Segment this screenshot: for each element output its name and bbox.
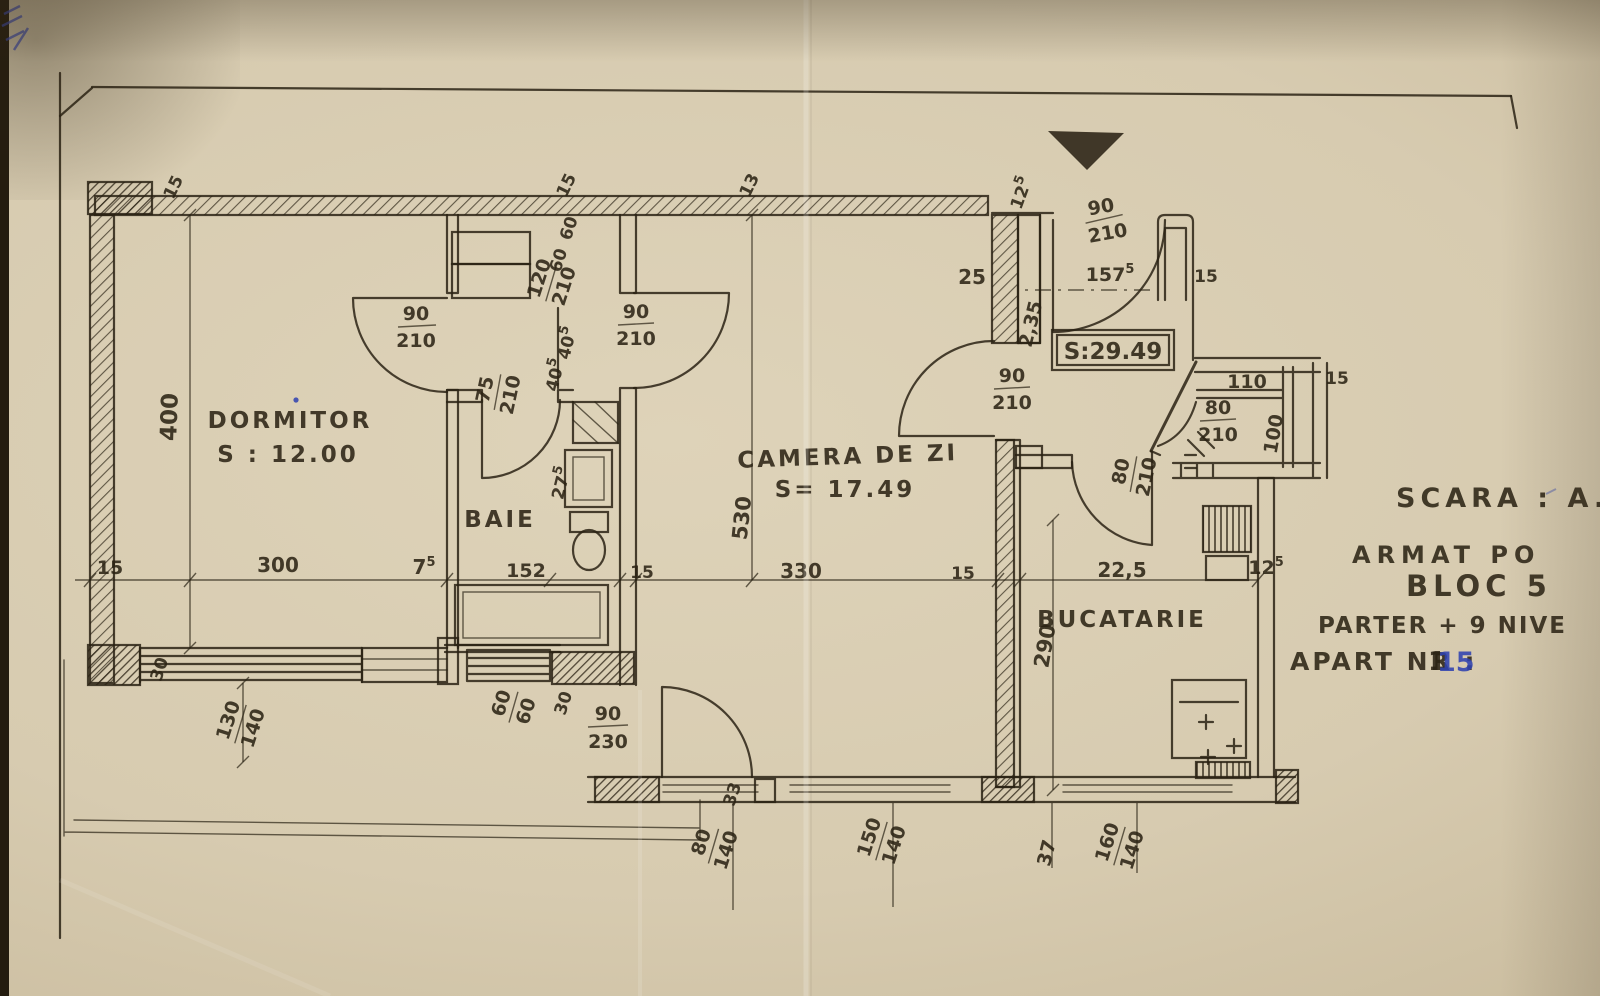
dim-400: 400 [156,393,184,442]
svg-text:80: 80 [1108,456,1135,486]
door-dim-vestibule: 90 210 [992,365,1032,414]
room-label-camera-de-zi: CAMERA DE ZI [737,440,959,474]
dim-15-left: 15 [97,557,123,579]
svg-text:6060: 6060 [546,214,583,275]
svg-text:210: 210 [616,328,656,350]
room-area-camera-de-zi: S= 17.49 [775,477,916,503]
svg-text:210: 210 [1198,424,1238,446]
svg-text:290: 290 [1029,622,1060,669]
window-dim-living: 150 140 [853,815,911,868]
svg-text:30: 30 [551,689,577,718]
door-dim-hall: 90 210 [616,301,656,350]
svg-text:210: 210 [992,392,1032,414]
room-labels: DORMITOR S : 12.00 BAIE CAMERA DE ZI S= … [208,408,1207,633]
window-dim-kitchen: 160 140 [1091,820,1149,873]
room-label-bucatarie: BUCATARIE [1037,607,1207,633]
closet-dim-6060: 6060 [546,214,583,275]
wall-dim-125: 125 [1003,173,1037,212]
dim-75: 75 [413,555,436,579]
dimension-ticks [84,209,1264,796]
svg-text:75: 75 [472,374,499,404]
dim-1575: 1575 [1086,262,1135,286]
kitchen-fixtures [1172,506,1251,778]
dim-225: 22,5 [1097,558,1146,582]
dim-30-right: 30 [551,689,577,718]
dim-125: 125 [1248,555,1284,579]
dim-37: 37 [1033,838,1061,869]
window-dim-small: 60 60 [486,685,542,730]
dim-530: 530 [728,495,756,541]
svg-text:405: 405 [550,324,581,362]
dim-33: 33 [720,780,746,809]
window-dim-hall: 80 140 [685,820,743,873]
svg-text:37: 37 [1033,838,1061,869]
svg-text:90: 90 [403,303,429,325]
door-dim-balcony: 80 210 [1198,397,1238,446]
apart-number-blue: 15 [1437,647,1475,678]
bath-dim-275: 275 [544,464,575,502]
room-area-dormitor: S : 12.00 [217,442,359,468]
svg-text:400: 400 [156,393,184,442]
svg-text:33: 33 [720,780,746,809]
svg-text:90: 90 [623,301,649,323]
dim-152: 152 [506,560,546,582]
niche-dim-405b: 405 [538,356,569,394]
dim-15-right: 15 [951,564,975,584]
svg-text:230: 230 [588,731,628,753]
svg-text:2,35: 2,35 [1015,299,1048,350]
dim-290: 290 [1029,622,1060,669]
dim-15-entry: 15 [1194,267,1218,287]
door-dim-bedroom: 90 210 [396,303,436,352]
door-dim-bath: 75 210 [470,368,525,417]
dim-15-balcony: 15 [1325,369,1349,389]
door-dim-stair: 90 210 [1081,193,1129,248]
window-dim-bedroom: 130 140 [212,698,270,751]
dim-15-mid: 15 [630,563,654,583]
svg-text:80: 80 [1205,397,1231,419]
svg-text:90: 90 [999,365,1025,387]
north-arrow-icon [1048,131,1124,170]
svg-text:275: 275 [544,464,575,502]
door-dim-entrance: 90 230 [588,703,628,753]
svg-text:90: 90 [595,703,621,725]
total-area-value: S:29.49 [1064,339,1163,365]
dimension-lines [75,209,1264,910]
room-label-dormitor: DORMITOR [208,408,373,434]
bath-fixtures [455,450,612,645]
room-label-baie: BAIE [464,507,536,533]
floor-plan-drawing: DORMITOR S : 12.00 BAIE CAMERA DE ZI S= … [0,0,1600,996]
svg-text:90: 90 [1086,194,1116,220]
svg-text:210: 210 [1086,219,1129,248]
svg-text:125: 125 [1003,173,1037,212]
dim-330: 330 [780,559,822,583]
balcony-window-dim: 110 [1227,371,1267,393]
svg-text:210: 210 [396,330,436,352]
dim-25: 25 [958,265,986,289]
dim-235: 2,35 [1015,299,1048,350]
niche-dim-405a: 405 [550,324,581,362]
svg-text:405: 405 [538,356,569,394]
dim-300: 300 [257,553,299,577]
door-dim-kitchen: 80 210 [1106,450,1161,499]
total-area-box: S:29.49 [1052,330,1174,370]
floor-plan-scan: DORMITOR S : 12.00 BAIE CAMERA DE ZI S= … [0,0,1600,996]
svg-text:530: 530 [728,495,756,541]
